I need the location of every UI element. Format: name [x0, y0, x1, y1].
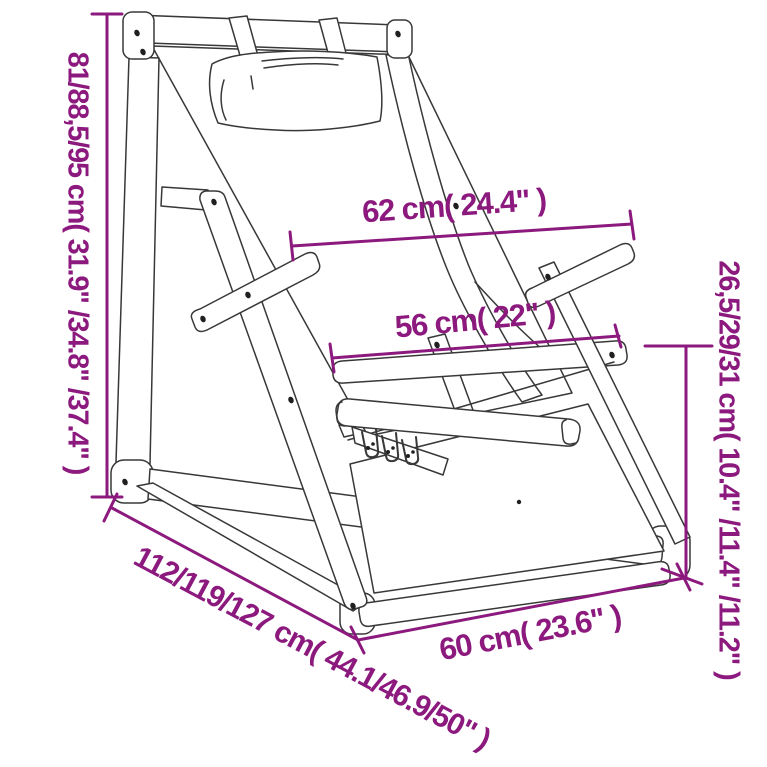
dimension-label-seat-height: 26,5/29/31 cm( 10.4" /11.4" /11.2" ) [712, 260, 745, 679]
left-back-rail [116, 57, 159, 464]
deck-chair-drawing [0, 0, 767, 767]
headrest-pillow [210, 51, 382, 131]
product-dimension-diagram: 81/88,5/95 cm( 31.9" /34.8" /37.4" ) 62 … [0, 0, 767, 767]
crossbar-right-cap [387, 20, 412, 58]
dimension-label-height: 81/88,5/95 cm( 31.9" /34.8" /37.4" ) [61, 52, 94, 474]
